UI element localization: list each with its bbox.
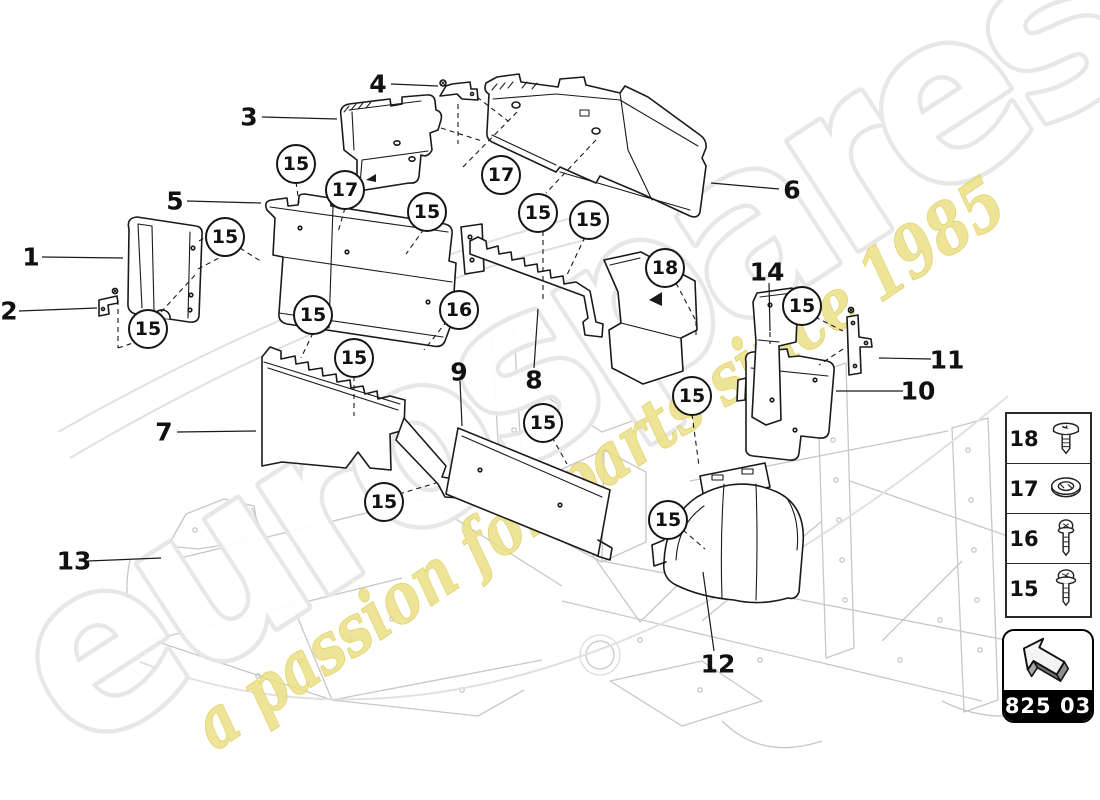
fastener-callout-17: 17	[325, 170, 365, 210]
part-callout-8: 8	[525, 366, 542, 395]
fastener-callout-15: 15	[518, 193, 558, 233]
fastener-callout-15: 15	[569, 200, 609, 240]
legend-number: 17	[1007, 477, 1041, 501]
part-callout-6: 6	[783, 176, 800, 205]
legend-row-16: 16	[1007, 514, 1090, 564]
fastener-callout-15: 15	[648, 500, 688, 540]
part-callout-10: 10	[901, 377, 936, 406]
washer-head-screw-icon	[1041, 567, 1090, 611]
back-arrow-icon	[1004, 631, 1092, 689]
part-callout-12: 12	[701, 650, 736, 679]
part-group-code-box[interactable]: 825 03	[1002, 629, 1094, 723]
fastener-callout-18: 18	[645, 248, 685, 288]
part-callout-2: 2	[0, 297, 17, 326]
pan-head-screw-icon	[1041, 517, 1090, 561]
legend-number: 18	[1007, 427, 1041, 451]
part-callout-5: 5	[166, 187, 183, 216]
fastener-callout-15: 15	[293, 295, 333, 335]
fastener-legend: 18 17	[1005, 412, 1092, 618]
legend-row-18: 18	[1007, 414, 1090, 464]
flanged-screw-icon	[1041, 417, 1090, 461]
fastener-callout-15: 15	[407, 192, 447, 232]
part-callout-9: 9	[450, 358, 467, 387]
fastener-callout-15: 15	[364, 482, 404, 522]
fastener-callout-15: 15	[334, 338, 374, 378]
part-callout-11: 11	[930, 346, 965, 375]
fastener-callout-15: 15	[276, 144, 316, 184]
legend-row-15: 15	[1007, 564, 1090, 613]
legend-number: 16	[1007, 527, 1041, 551]
part-callout-14: 14	[750, 258, 785, 287]
part-callout-4: 4	[369, 70, 386, 99]
part-group-code: 825 03	[1004, 690, 1092, 721]
legend-number: 15	[1007, 577, 1041, 601]
fastener-callout-15: 15	[672, 376, 712, 416]
legend-row-17: 17	[1007, 464, 1090, 514]
part-callout-13: 13	[57, 547, 92, 576]
fastener-callout-15: 15	[782, 286, 822, 326]
plastic-nut-icon	[1041, 467, 1090, 511]
part-callout-7: 7	[155, 418, 172, 447]
part-callout-1: 1	[22, 243, 39, 272]
part-callout-3: 3	[240, 103, 257, 132]
parts-diagram-page: eurospares a passion for parts since 198…	[0, 0, 1100, 800]
fastener-callout-17: 17	[481, 155, 521, 195]
fastener-callout-15: 15	[128, 309, 168, 349]
fastener-callout-15: 15	[205, 217, 245, 257]
fastener-callout-15: 15	[523, 403, 563, 443]
fastener-callout-16: 16	[439, 290, 479, 330]
